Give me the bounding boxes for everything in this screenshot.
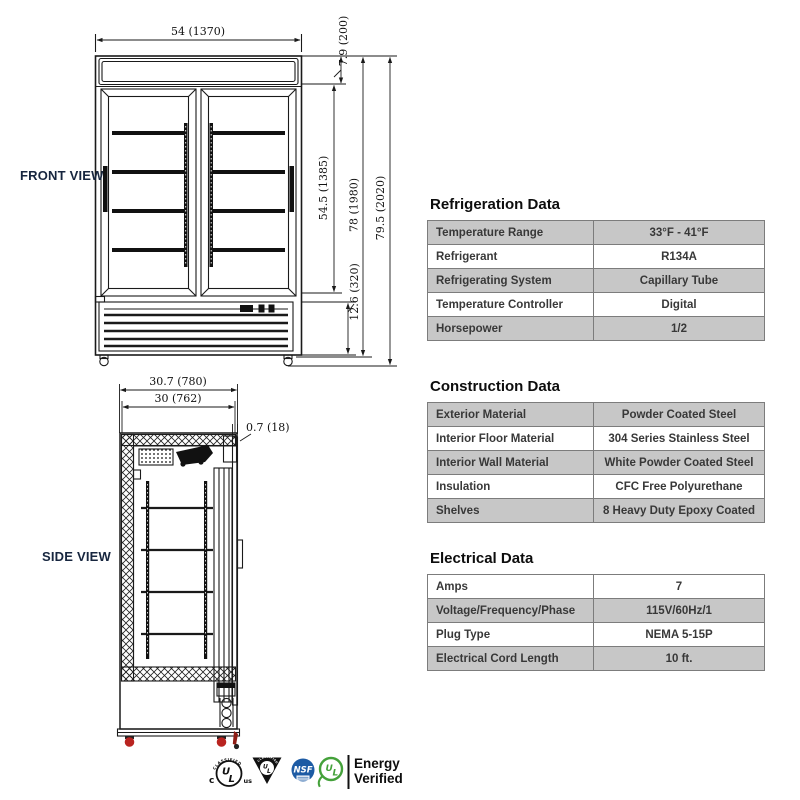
energy-verified-line1: Energy	[354, 756, 400, 771]
spec-value: 1/2	[594, 317, 764, 340]
side-view-drawing: 30.7 (780) 30 (762) 0.7 (18)	[118, 375, 290, 749]
spec-value: 10 ft.	[594, 647, 764, 670]
front-louver-section	[96, 297, 294, 352]
table-row: Temperature Range 33°F - 41°F	[428, 221, 764, 244]
table-row: Plug Type NEMA 5-15P	[428, 622, 764, 646]
front-right-door	[201, 89, 296, 296]
side-door-handle	[238, 540, 243, 568]
electrical-data-title: Electrical Data	[430, 550, 765, 567]
ul-classified-us: us	[244, 777, 253, 785]
spec-label: Refrigerant	[428, 245, 594, 268]
spec-label: Horsepower	[428, 317, 594, 340]
ul-classified-icon: CLASSIFIED U L c us	[209, 757, 252, 786]
nsf-icon: NSF	[292, 759, 315, 782]
table-row: Exterior Material Powder Coated Steel	[428, 403, 764, 426]
construction-data-title: Construction Data	[430, 378, 765, 395]
spec-value: 8 Heavy Duty Epoxy Coated	[594, 499, 764, 522]
table-row: Refrigerating System Capillary Tube	[428, 268, 764, 292]
spec-value: 7	[594, 575, 764, 598]
svg-text:L: L	[229, 774, 235, 785]
spec-value: 115V/60Hz/1	[594, 599, 764, 622]
spec-label: Temperature Range	[428, 221, 594, 244]
ul-triangle-icon: CLASSIFIED U L	[253, 755, 282, 784]
spec-value: Digital	[594, 293, 764, 316]
electrical-data-section: Electrical Data Amps 7 Voltage/Frequency…	[427, 550, 765, 671]
refrigeration-data-section: Refrigeration Data Temperature Range 33°…	[427, 196, 765, 341]
spec-value: 304 Series Stainless Steel	[594, 427, 764, 450]
spec-value: Powder Coated Steel	[594, 403, 764, 426]
dim-front-width: 54 (1370)	[171, 25, 225, 38]
svg-text:L: L	[267, 768, 271, 775]
compressor-compartment	[122, 681, 237, 728]
dim-front-bottom-height: 12.6 (320)	[348, 263, 361, 321]
table-row: Interior Floor Material 304 Series Stain…	[428, 426, 764, 450]
spec-value: 33°F - 41°F	[594, 221, 764, 244]
svg-text:NSF: NSF	[293, 766, 312, 776]
front-view-label: FRONT VIEW	[20, 168, 104, 183]
construction-data-table: Exterior Material Powder Coated Steel In…	[427, 402, 765, 523]
energy-verified-line2: Verified	[354, 771, 403, 786]
spec-value: R134A	[594, 245, 764, 268]
ul-energy-verified-icon: U L	[319, 758, 342, 787]
front-right-handle	[290, 166, 295, 212]
evaporator	[139, 445, 213, 467]
refrigeration-data-table: Temperature Range 33°F - 41°F Refrigeran…	[427, 220, 765, 341]
spec-label: Amps	[428, 575, 594, 598]
table-row: Amps 7	[428, 575, 764, 598]
ul-classified-c: c	[209, 776, 214, 786]
certification-logos: CLASSIFIED U L c us CLASSIFIED U L NSF	[209, 755, 403, 789]
table-row: Electrical Cord Length 10 ft.	[428, 646, 764, 670]
spec-label: Shelves	[428, 499, 594, 522]
front-shelves	[112, 123, 285, 267]
table-row: Temperature Controller Digital	[428, 292, 764, 316]
dim-side-body-depth: 30 (762)	[154, 392, 201, 405]
front-view-drawing: 54 (1370)	[96, 16, 398, 366]
front-left-door	[101, 89, 196, 296]
dim-side-door-thickness: 0.7 (18)	[246, 421, 290, 434]
side-casters	[125, 731, 239, 749]
spec-label: Voltage/Frequency/Phase	[428, 599, 594, 622]
dim-front-overall-height: 79.5 (2020)	[374, 176, 387, 241]
spec-label: Temperature Controller	[428, 293, 594, 316]
spec-label: Exterior Material	[428, 403, 594, 426]
dim-front-header-height: 7.9 (200)	[337, 16, 350, 67]
side-door	[214, 436, 243, 705]
spec-value: CFC Free Polyurethane	[594, 475, 764, 498]
electrical-data-table: Amps 7 Voltage/Frequency/Phase 115V/60Hz…	[427, 574, 765, 671]
dim-front-cabinet-height: 78 (1980)	[348, 178, 361, 232]
table-row: Horsepower 1/2	[428, 316, 764, 340]
spec-label: Insulation	[428, 475, 594, 498]
spec-label: Interior Wall Material	[428, 451, 594, 474]
table-row: Insulation CFC Free Polyurethane	[428, 474, 764, 498]
spec-label: Plug Type	[428, 623, 594, 646]
spec-label: Interior Floor Material	[428, 427, 594, 450]
spec-label: Electrical Cord Length	[428, 647, 594, 670]
table-row: Interior Wall Material White Powder Coat…	[428, 450, 764, 474]
side-view-label: SIDE VIEW	[42, 549, 111, 564]
svg-text:L: L	[333, 769, 339, 779]
refrigeration-data-title: Refrigeration Data	[430, 196, 765, 213]
dim-side-overall-depth: 30.7 (780)	[149, 375, 207, 388]
table-row: Voltage/Frequency/Phase 115V/60Hz/1	[428, 598, 764, 622]
spec-value: White Powder Coated Steel	[594, 451, 764, 474]
front-casters	[100, 355, 292, 366]
spec-value: NEMA 5-15P	[594, 623, 764, 646]
side-shelves	[141, 481, 213, 659]
table-row: Refrigerant R134A	[428, 244, 764, 268]
construction-data-section: Construction Data Exterior Material Powd…	[427, 378, 765, 523]
spec-label: Refrigerating System	[428, 269, 594, 292]
spec-value: Capillary Tube	[594, 269, 764, 292]
dim-front-door-height: 54.5 (1385)	[317, 156, 330, 221]
table-row: Shelves 8 Heavy Duty Epoxy Coated	[428, 498, 764, 522]
